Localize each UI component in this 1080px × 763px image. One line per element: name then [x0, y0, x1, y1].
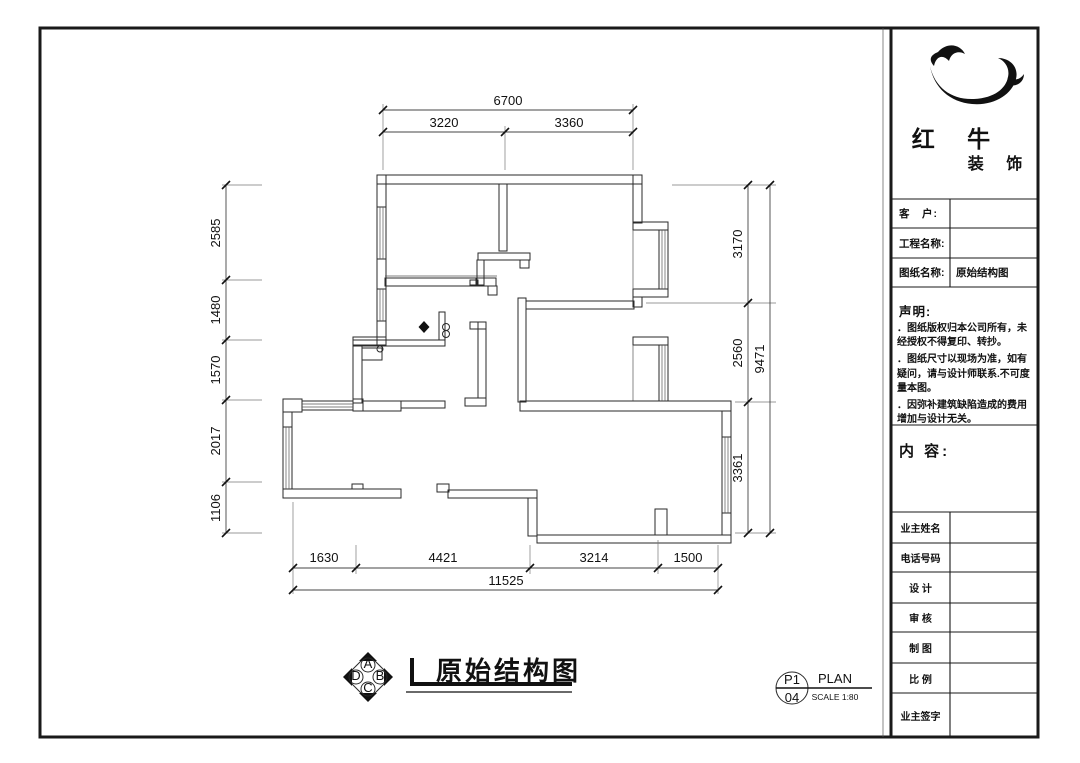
page-marker-type: PLAN — [818, 671, 852, 686]
page-title: 原始结构图 — [436, 651, 581, 688]
dim-bottom-total: 11525 — [488, 573, 523, 588]
dim-left-seg2: 1480 — [208, 296, 223, 325]
pipe-symbol-icon — [443, 324, 450, 331]
drawing-name-label: 图纸名称: — [899, 258, 949, 287]
dim-top-total: 6700 — [494, 93, 523, 108]
compass-label-b: B — [376, 668, 385, 683]
project-name-label: 工程名称: — [899, 228, 949, 258]
sheet-border — [40, 28, 1038, 737]
dim-top-seg2: 3360 — [555, 115, 584, 130]
dim-chain-right: 3170 2560 3361 9471 — [646, 181, 776, 537]
dim-right-seg2: 2560 — [730, 339, 745, 368]
diamond-marker-icon — [419, 321, 430, 333]
dim-chain-bottom: 1630 4421 3214 1500 11525 — [289, 502, 722, 594]
elevation-compass-icon: A B C D — [343, 652, 393, 702]
dim-bottom-seg1: 1630 — [310, 550, 339, 565]
company-suffix: 装 饰 — [952, 150, 1038, 174]
compass-label-c: C — [363, 680, 372, 695]
owner-name-label: 业主姓名 — [891, 512, 950, 543]
statement-item: ．图纸版权归本公司所有，未经授权不得复印、转抄。 — [897, 322, 1031, 350]
scale-label: 比 例 — [891, 663, 950, 693]
content-label: 内 容: — [899, 440, 950, 461]
dim-right-total: 9471 — [752, 345, 767, 374]
review-label: 审 核 — [891, 603, 950, 632]
statement-item: ．图纸尺寸以现场为准，如有疑问，请与设计师联系.不可度量本图。 — [897, 353, 1031, 396]
page-marker-code: P1 — [784, 672, 800, 687]
page-marker: P1 04 PLAN SCALE 1:80 — [776, 671, 872, 705]
dim-bottom-seg4: 1500 — [674, 550, 703, 565]
page-marker-scale: SCALE 1:80 — [812, 692, 859, 702]
floor-plan-partitions — [353, 184, 634, 406]
dim-left-seg4: 2017 — [208, 427, 223, 456]
draft-label: 制 图 — [891, 632, 950, 663]
dim-bottom-seg3: 3214 — [580, 550, 609, 565]
statement-item: ．因弥补建筑缺陷造成的费用增加与设计无关。 — [897, 399, 1031, 427]
dim-left-seg3: 1570 — [208, 356, 223, 385]
dim-right-seg3: 3361 — [730, 454, 745, 483]
dim-left-seg5: 1106 — [208, 494, 223, 522]
design-label: 设 计 — [891, 572, 950, 603]
page-marker-number: 04 — [785, 690, 799, 705]
drawing-name-value: 原始结构图 — [956, 258, 1036, 287]
company-name: 红 牛 — [893, 120, 1009, 154]
owner-signature-label: 业主签字 — [891, 693, 950, 737]
statement-list: ．图纸版权归本公司所有，未经授权不得复印、转抄。 ．图纸尺寸以现场为准，如有疑问… — [897, 322, 1031, 430]
dim-bottom-seg2: 4421 — [429, 550, 458, 565]
drawing-sheet: 6700 3220 3360 2585 1480 1570 2017 1106 — [0, 0, 1080, 763]
dim-chain-top: 6700 3220 3360 — [379, 93, 637, 170]
statement-heading: 声明: — [899, 301, 931, 320]
phone-label: 电话号码 — [891, 543, 950, 572]
dim-right-seg1: 3170 — [730, 230, 745, 259]
dim-chain-left: 2585 1480 1570 2017 1106 — [208, 181, 262, 537]
compass-label-a: A — [364, 656, 373, 671]
dim-top-seg1: 3220 — [430, 115, 459, 130]
bull-logo — [930, 45, 1024, 104]
client-label: 客 户: — [899, 199, 949, 228]
pipe-symbol-icon — [443, 331, 450, 338]
dim-left-seg1: 2585 — [208, 219, 223, 248]
compass-label-d: D — [351, 668, 360, 683]
